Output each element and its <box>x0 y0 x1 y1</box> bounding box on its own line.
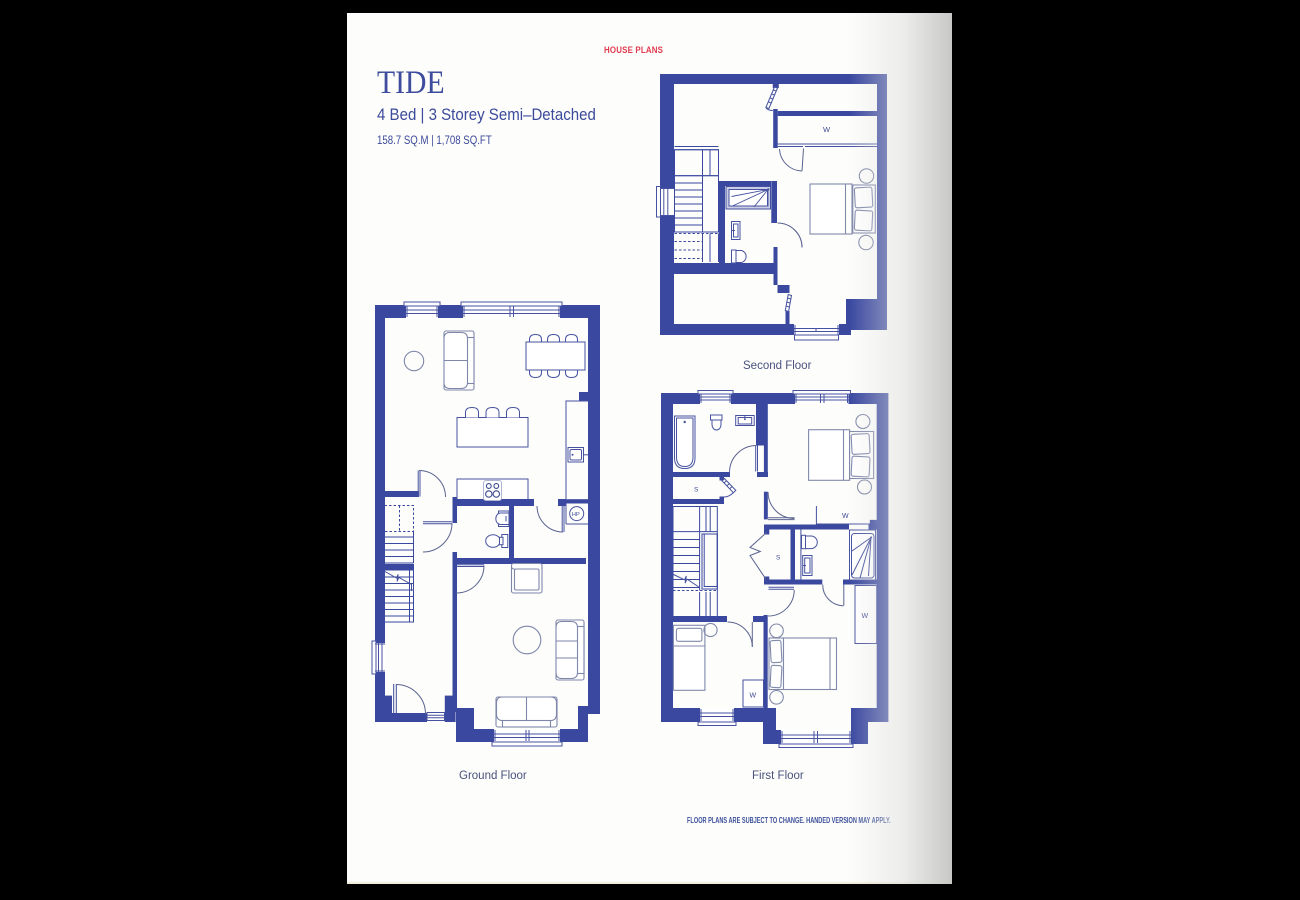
svg-text:W: W <box>862 613 869 620</box>
svg-text:S: S <box>694 487 699 494</box>
svg-text:W: W <box>842 513 849 520</box>
svg-text:S: S <box>776 555 781 562</box>
svg-text:W: W <box>750 693 757 700</box>
svg-text:HP: HP <box>572 512 580 518</box>
svg-text:W: W <box>823 125 831 134</box>
